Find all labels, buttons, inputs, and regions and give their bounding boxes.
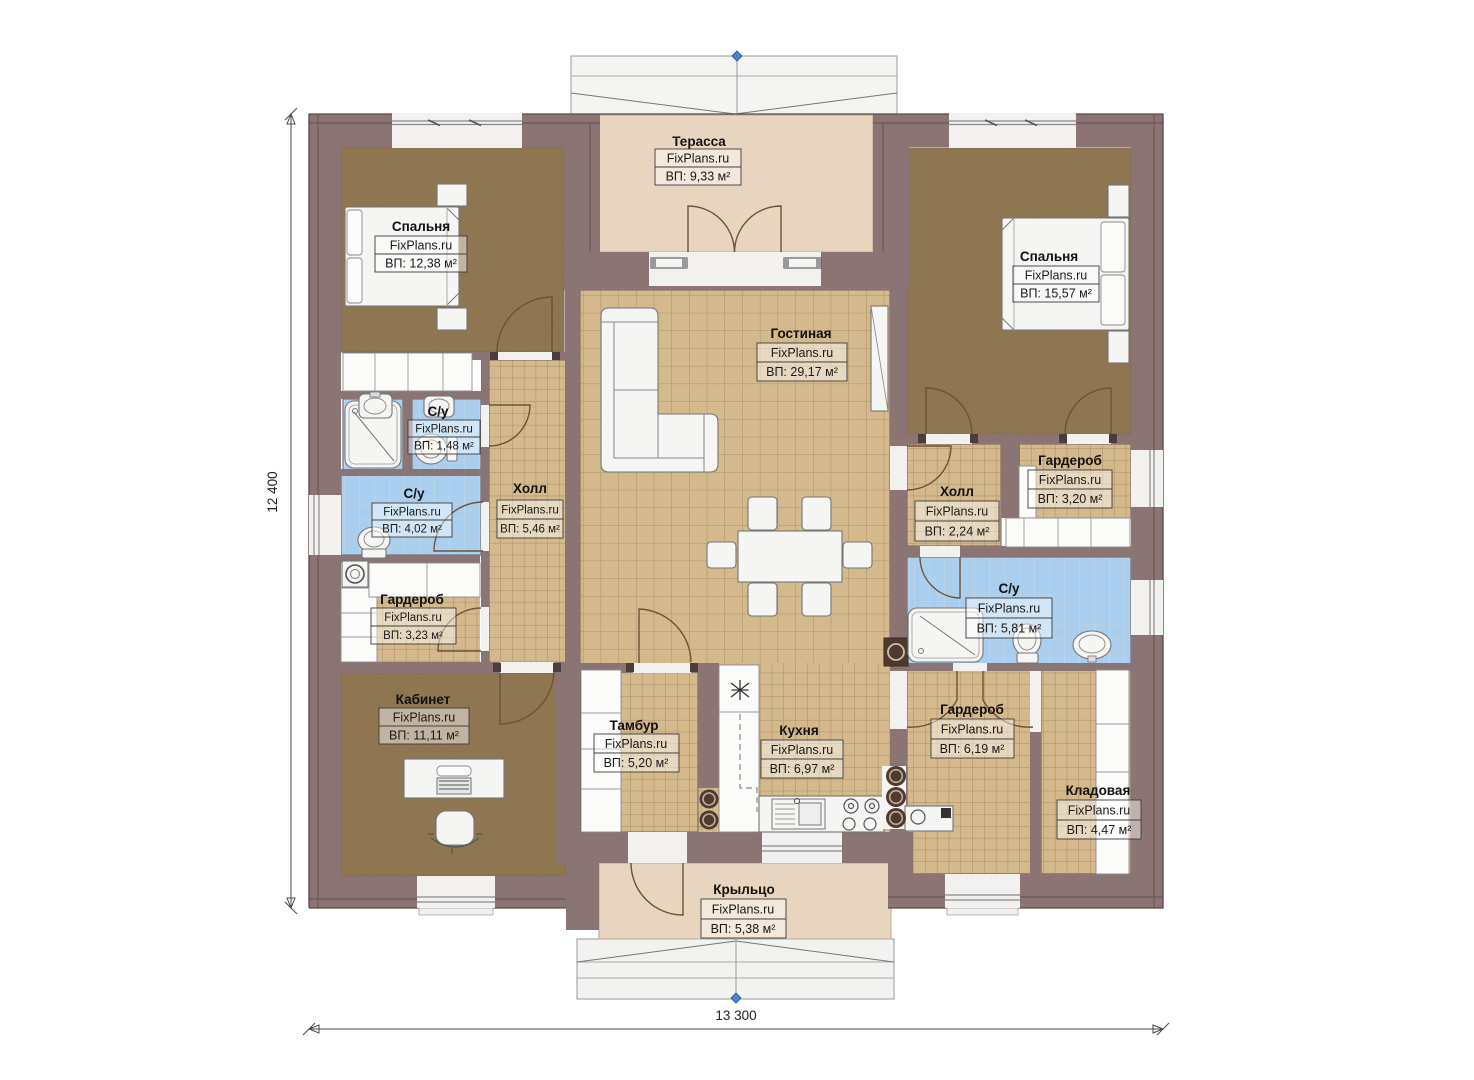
svg-text:Гостиная: Гостиная [770,326,831,341]
svg-text:Крыльцо: Крыльцо [713,882,774,897]
svg-text:ВП: 5,38 м²: ВП: 5,38 м² [711,922,776,936]
svg-text:FixPlans.ru: FixPlans.ru [415,424,473,436]
svg-text:ВП: 6,97 м²: ВП: 6,97 м² [770,762,835,776]
svg-text:Спальня: Спальня [392,219,450,234]
svg-text:ВП: 9,33 м²: ВП: 9,33 м² [666,170,731,184]
svg-text:ВП: 12,38 м²: ВП: 12,38 м² [385,257,457,271]
svg-text:FixPlans.ru: FixPlans.ru [384,612,442,624]
svg-text:ВП: 4,02 м²: ВП: 4,02 м² [382,524,442,536]
svg-text:С/у: С/у [427,404,449,419]
svg-text:Кабинет: Кабинет [396,692,451,707]
svg-text:Гардероб: Гардероб [1038,453,1102,468]
svg-text:FixPlans.ru: FixPlans.ru [771,346,834,360]
svg-text:Холл: Холл [513,481,547,496]
svg-text:ВП: 5,81 м²: ВП: 5,81 м² [977,622,1042,636]
svg-text:ВП: 4,47 м²: ВП: 4,47 м² [1067,823,1132,837]
svg-text:Тамбур: Тамбур [610,718,659,733]
svg-text:С/у: С/у [998,581,1020,596]
svg-text:FixPlans.ru: FixPlans.ru [605,737,668,751]
svg-text:ВП: 3,20 м²: ВП: 3,20 м² [1038,492,1103,506]
svg-text:ВП: 5,20 м²: ВП: 5,20 м² [604,756,669,770]
svg-text:FixPlans.ru: FixPlans.ru [978,602,1041,616]
svg-text:ВП: 3,23 м²: ВП: 3,23 м² [383,630,443,642]
svg-text:FixPlans.ru: FixPlans.ru [390,239,453,253]
svg-text:С/у: С/у [403,486,425,501]
svg-text:FixPlans.ru: FixPlans.ru [771,743,834,757]
svg-text:FixPlans.ru: FixPlans.ru [1025,269,1088,283]
svg-text:ВП: 5,46 м²: ВП: 5,46 м² [500,524,560,536]
svg-text:ВП: 29,17 м²: ВП: 29,17 м² [766,365,838,379]
svg-text:FixPlans.ru: FixPlans.ru [1039,473,1102,487]
svg-text:ВП: 11,11 м²: ВП: 11,11 м² [389,729,459,743]
svg-text:FixPlans.ru: FixPlans.ru [501,505,559,517]
svg-text:FixPlans.ru: FixPlans.ru [393,711,456,725]
svg-text:12 400: 12 400 [265,471,280,512]
svg-text:ВП: 1,48 м²: ВП: 1,48 м² [414,441,474,453]
svg-text:FixPlans.ru: FixPlans.ru [383,507,441,519]
svg-text:FixPlans.ru: FixPlans.ru [1068,804,1131,818]
svg-text:Кладовая: Кладовая [1066,783,1131,798]
svg-text:Гардероб: Гардероб [380,592,444,607]
svg-text:Холл: Холл [940,484,974,499]
svg-text:FixPlans.ru: FixPlans.ru [926,505,989,519]
svg-text:Гардероб: Гардероб [940,702,1004,717]
svg-text:FixPlans.ru: FixPlans.ru [712,903,775,917]
svg-text:ВП: 15,57 м²: ВП: 15,57 м² [1020,287,1092,301]
svg-text:Кухня: Кухня [779,723,818,738]
svg-text:13 300: 13 300 [715,1008,756,1023]
svg-text:ВП: 2,24 м²: ВП: 2,24 м² [925,525,990,539]
svg-text:FixPlans.ru: FixPlans.ru [667,152,730,166]
svg-text:FixPlans.ru: FixPlans.ru [941,723,1004,737]
svg-text:Спальня: Спальня [1020,249,1078,264]
svg-text:ВП: 6,19 м²: ВП: 6,19 м² [940,742,1005,756]
svg-text:Терасса: Терасса [672,134,726,149]
